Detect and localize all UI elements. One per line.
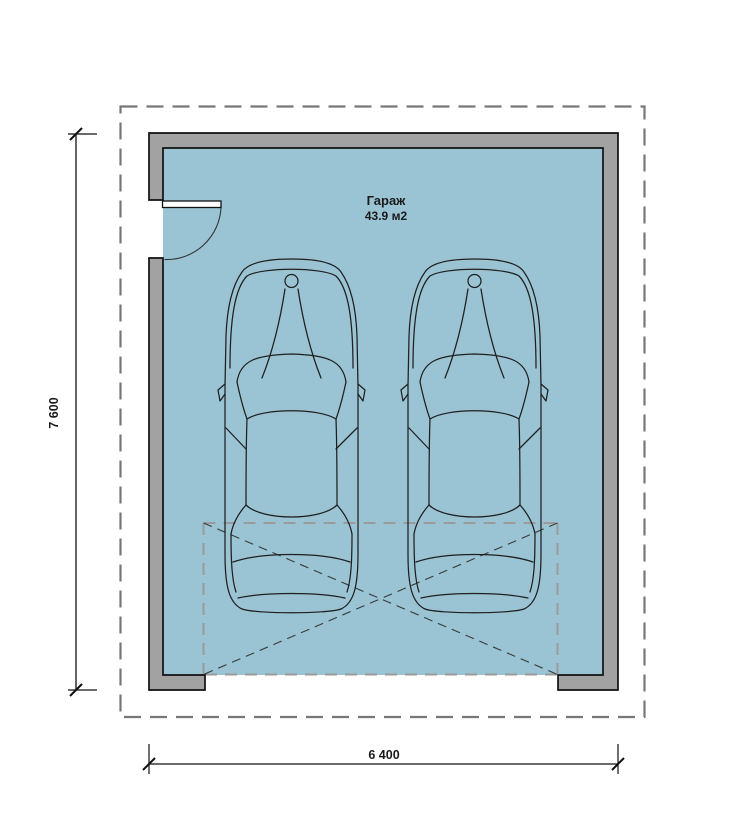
garage-floor xyxy=(163,148,603,675)
floor-plan-page: Гараж 43.9 м2 7 600 6 400 xyxy=(0,0,744,837)
door-leaf xyxy=(163,201,222,208)
room-area-label: 43.9 м2 xyxy=(365,209,408,223)
dim-vertical xyxy=(68,128,97,696)
dim-horizontal-label: 6 400 xyxy=(368,748,399,762)
floor-plan-drawing: Гараж 43.9 м2 7 600 6 400 xyxy=(0,0,744,837)
dim-vertical-label: 7 600 xyxy=(47,397,61,428)
room-label: Гараж xyxy=(367,193,407,208)
